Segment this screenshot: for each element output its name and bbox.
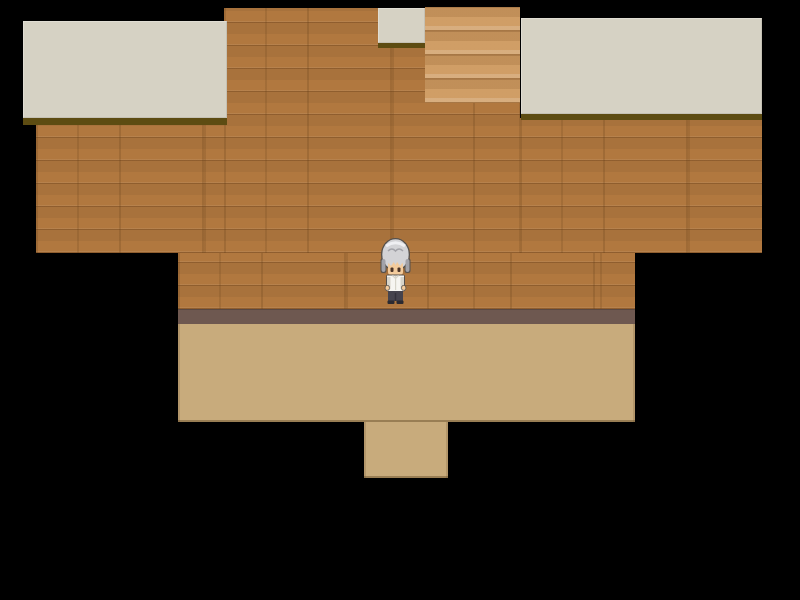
floor-doorway[interactable] [364,422,448,478]
wood-wall-right [520,118,762,253]
ceiling-tile-top [378,8,425,43]
ceiling-tile-right [521,18,762,114]
baseboard [178,309,635,324]
floor-main[interactable] [178,324,635,422]
exit-siding-tile [425,7,520,103]
ceiling-shadow-top [378,43,425,48]
wood-wall-left [36,125,224,253]
ceiling-shadow-left [23,118,227,125]
ceiling-tile-left [23,21,227,118]
player-sprite [380,237,411,304]
game-viewport[interactable] [0,0,800,600]
player-character [380,237,411,304]
ceiling-shadow-right [521,114,762,120]
